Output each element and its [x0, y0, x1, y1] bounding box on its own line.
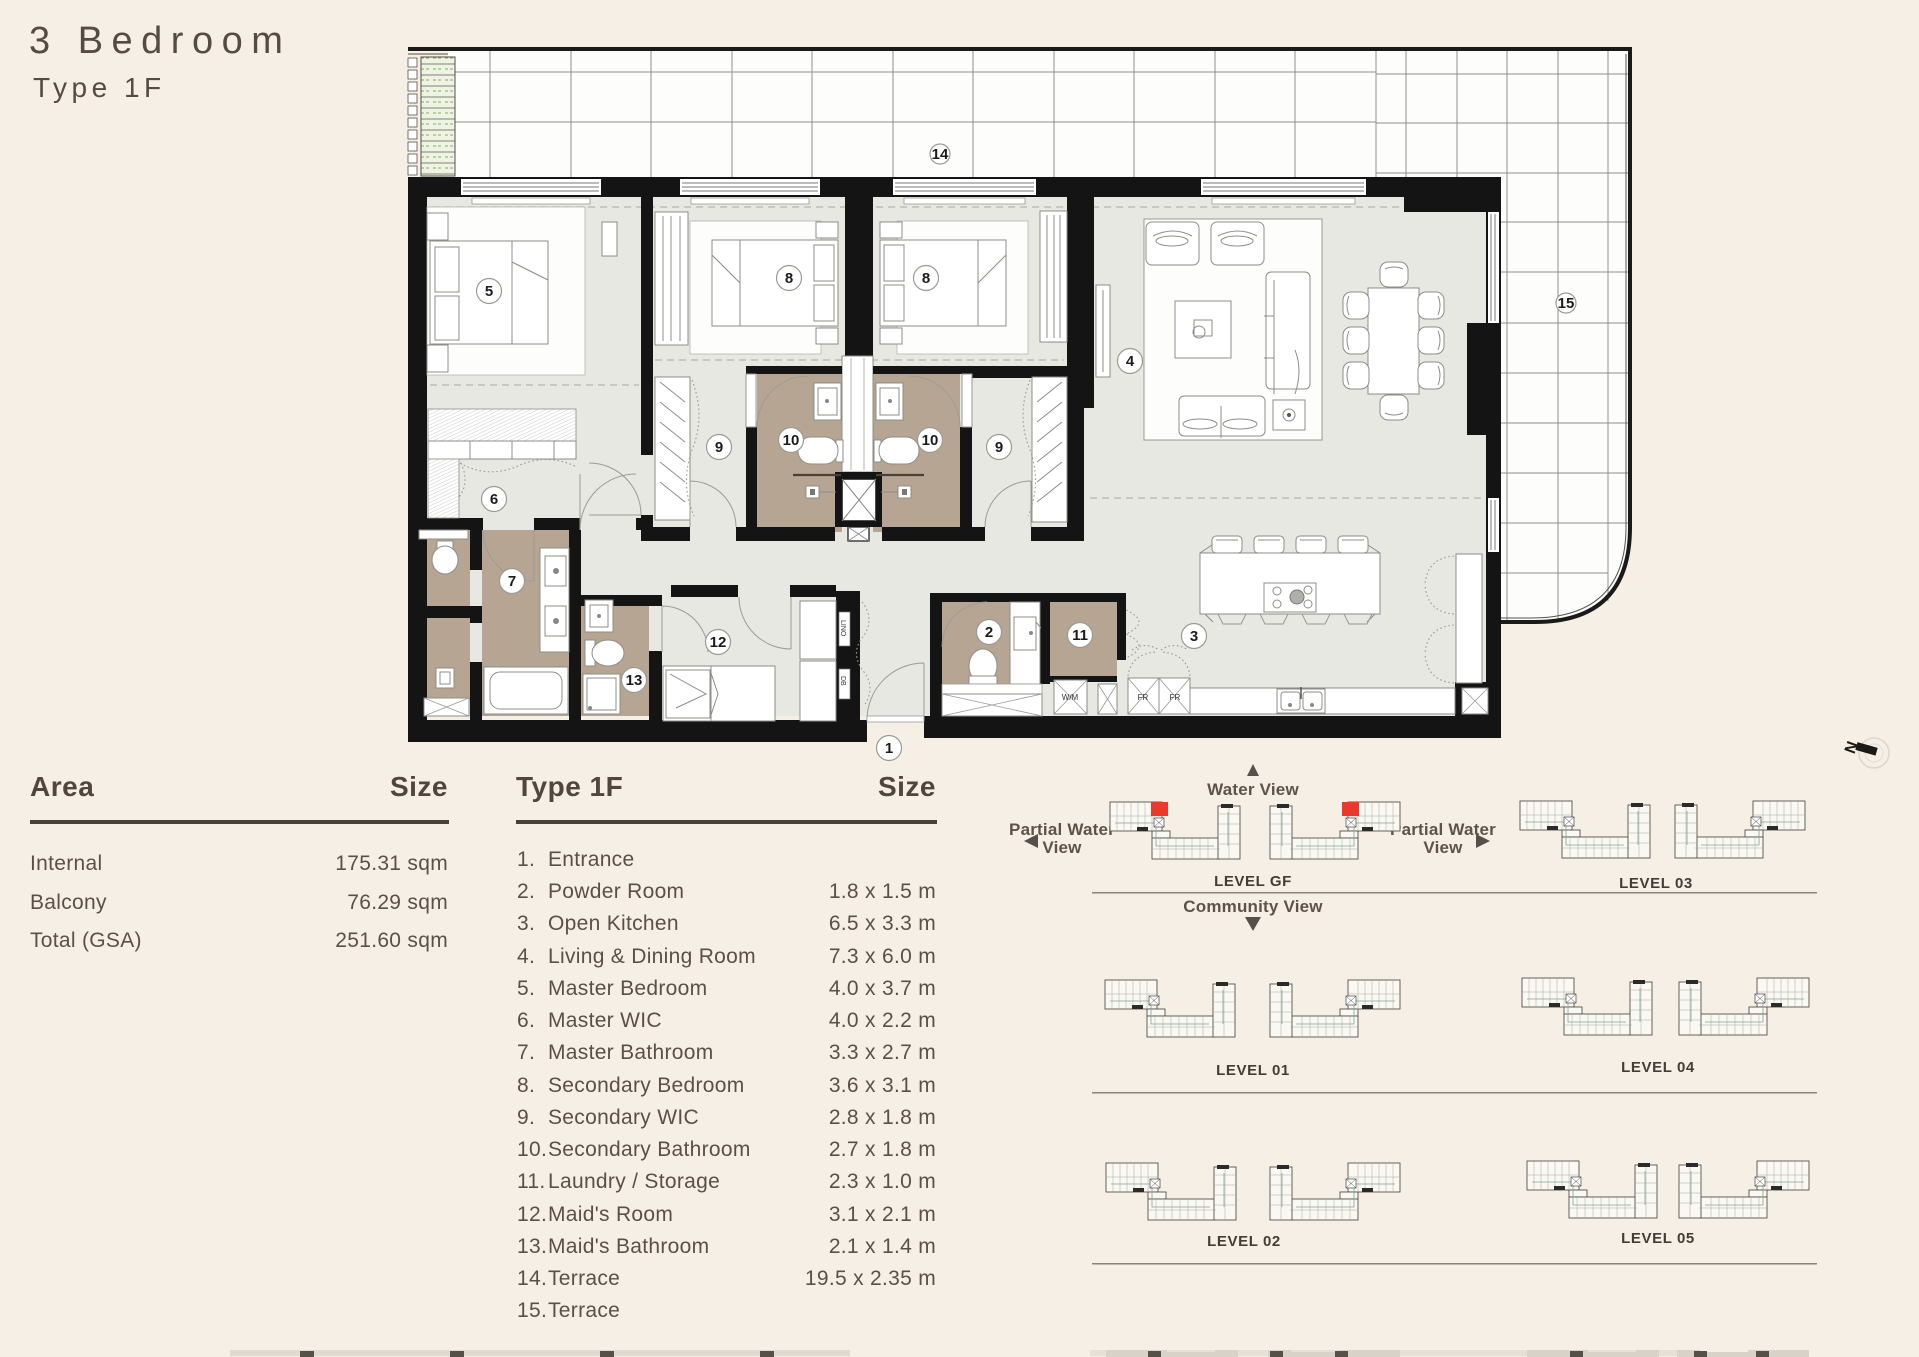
svg-text:Water View: Water View: [1207, 780, 1299, 799]
svg-text:Partial Water: Partial Water: [1009, 820, 1115, 839]
svg-text:View: View: [1042, 838, 1082, 857]
svg-text:9: 9: [715, 439, 723, 456]
svg-text:8: 8: [785, 270, 793, 287]
svg-text:FR: FR: [1170, 693, 1181, 702]
svg-text:2.: 2.: [517, 880, 535, 903]
svg-text:1.8 x 1.5 m: 1.8 x 1.5 m: [829, 880, 936, 903]
svg-text:4.0 x 3.7 m: 4.0 x 3.7 m: [829, 977, 936, 1000]
svg-text:Area: Area: [30, 771, 94, 802]
svg-text:Secondary WIC: Secondary WIC: [548, 1106, 699, 1129]
svg-text:FR: FR: [1138, 693, 1149, 702]
svg-text:LINO: LINO: [839, 620, 846, 637]
svg-text:76.29 sqm: 76.29 sqm: [347, 891, 448, 914]
svg-text:14: 14: [932, 146, 949, 163]
svg-text:2.7 x 1.8 m: 2.7 x 1.8 m: [829, 1138, 936, 1161]
svg-text:Total (GSA): Total (GSA): [30, 929, 142, 952]
svg-text:13: 13: [626, 672, 643, 689]
svg-text:W/M: W/M: [1062, 693, 1079, 702]
svg-text:LEVEL 02: LEVEL 02: [1207, 1233, 1281, 1250]
svg-text:10.: 10.: [517, 1138, 547, 1161]
svg-text:12: 12: [710, 634, 727, 651]
svg-text:8.: 8.: [517, 1074, 535, 1097]
svg-text:1: 1: [885, 740, 893, 757]
svg-text:2.8 x 1.8 m: 2.8 x 1.8 m: [829, 1106, 936, 1129]
svg-text:LEVEL GF: LEVEL GF: [1214, 873, 1292, 890]
svg-text:2.1 x 1.4 m: 2.1 x 1.4 m: [829, 1235, 936, 1258]
svg-text:Terrace: Terrace: [548, 1299, 620, 1322]
svg-text:Laundry / Storage: Laundry / Storage: [548, 1170, 720, 1193]
svg-text:3.6 x 3.1 m: 3.6 x 3.1 m: [829, 1074, 936, 1097]
svg-text:7.: 7.: [517, 1041, 535, 1064]
svg-text:13.: 13.: [517, 1235, 547, 1258]
svg-text:15: 15: [1558, 295, 1575, 312]
svg-text:5: 5: [485, 283, 493, 300]
svg-text:Maid's Bathroom: Maid's Bathroom: [548, 1235, 709, 1258]
svg-text:10: 10: [922, 432, 939, 449]
svg-text:9.: 9.: [517, 1106, 535, 1129]
svg-text:Type 1F: Type 1F: [516, 771, 623, 802]
svg-text:Size: Size: [878, 771, 936, 802]
svg-text:LEVEL 04: LEVEL 04: [1621, 1059, 1695, 1076]
svg-text:11: 11: [1072, 627, 1088, 644]
svg-text:251.60 sqm: 251.60 sqm: [335, 929, 448, 952]
svg-text:Terrace: Terrace: [548, 1267, 620, 1290]
svg-text:3.3 x 2.7 m: 3.3 x 2.7 m: [829, 1041, 936, 1064]
svg-text:11.: 11.: [517, 1170, 546, 1193]
svg-text:LEVEL 01: LEVEL 01: [1216, 1062, 1290, 1079]
svg-text:6.: 6.: [517, 1009, 535, 1032]
svg-text:2.3 x 1.0 m: 2.3 x 1.0 m: [829, 1170, 936, 1193]
svg-text:Community View: Community View: [1183, 897, 1323, 916]
svg-text:10: 10: [783, 432, 800, 449]
svg-text:Internal: Internal: [30, 852, 102, 875]
svg-text:9: 9: [995, 439, 1003, 456]
svg-text:4: 4: [1126, 353, 1135, 370]
svg-text:3: 3: [1190, 628, 1198, 645]
svg-text:Entrance: Entrance: [548, 848, 634, 871]
svg-text:Balcony: Balcony: [30, 891, 107, 914]
svg-text:Maid's Room: Maid's Room: [548, 1203, 673, 1226]
svg-text:View: View: [1423, 838, 1463, 857]
svg-text:6: 6: [490, 491, 498, 508]
svg-text:Master Bedroom: Master Bedroom: [548, 977, 707, 1000]
svg-text:Powder Room: Powder Room: [548, 880, 684, 903]
svg-text:Size: Size: [390, 771, 448, 802]
svg-text:4.0 x 2.2 m: 4.0 x 2.2 m: [829, 1009, 936, 1032]
svg-text:5.: 5.: [517, 977, 535, 1000]
svg-text:3.: 3.: [517, 912, 535, 935]
svg-text:15.: 15.: [517, 1299, 547, 1322]
svg-text:Master Bathroom: Master Bathroom: [548, 1041, 714, 1064]
svg-text:14.: 14.: [517, 1267, 547, 1290]
svg-text:4.: 4.: [517, 945, 535, 968]
svg-text:1.: 1.: [517, 848, 535, 871]
svg-text:3 Bedroom: 3 Bedroom: [29, 20, 291, 62]
svg-text:Secondary Bedroom: Secondary Bedroom: [548, 1074, 745, 1097]
svg-text:7: 7: [508, 573, 516, 590]
svg-text:Secondary Bathroom: Secondary Bathroom: [548, 1138, 751, 1161]
svg-text:LEVEL 03: LEVEL 03: [1619, 875, 1693, 892]
svg-text:Open Kitchen: Open Kitchen: [548, 912, 679, 935]
svg-text:7.3 x 6.0 m: 7.3 x 6.0 m: [829, 945, 936, 968]
svg-text:3.1 x 2.1 m: 3.1 x 2.1 m: [829, 1203, 936, 1226]
svg-text:DB: DB: [839, 676, 846, 686]
svg-text:12.: 12.: [517, 1203, 547, 1226]
svg-text:2: 2: [985, 624, 993, 641]
svg-text:8: 8: [922, 270, 930, 287]
svg-text:6.5 x 3.3 m: 6.5 x 3.3 m: [829, 912, 936, 935]
svg-text:Living & Dining Room: Living & Dining Room: [548, 945, 756, 968]
svg-text:Type 1F: Type 1F: [33, 72, 166, 103]
svg-text:LEVEL 05: LEVEL 05: [1621, 1230, 1695, 1247]
svg-text:Master WIC: Master WIC: [548, 1009, 662, 1032]
svg-text:175.31 sqm: 175.31 sqm: [335, 852, 448, 875]
svg-text:19.5 x 2.35 m: 19.5 x 2.35 m: [805, 1267, 936, 1290]
